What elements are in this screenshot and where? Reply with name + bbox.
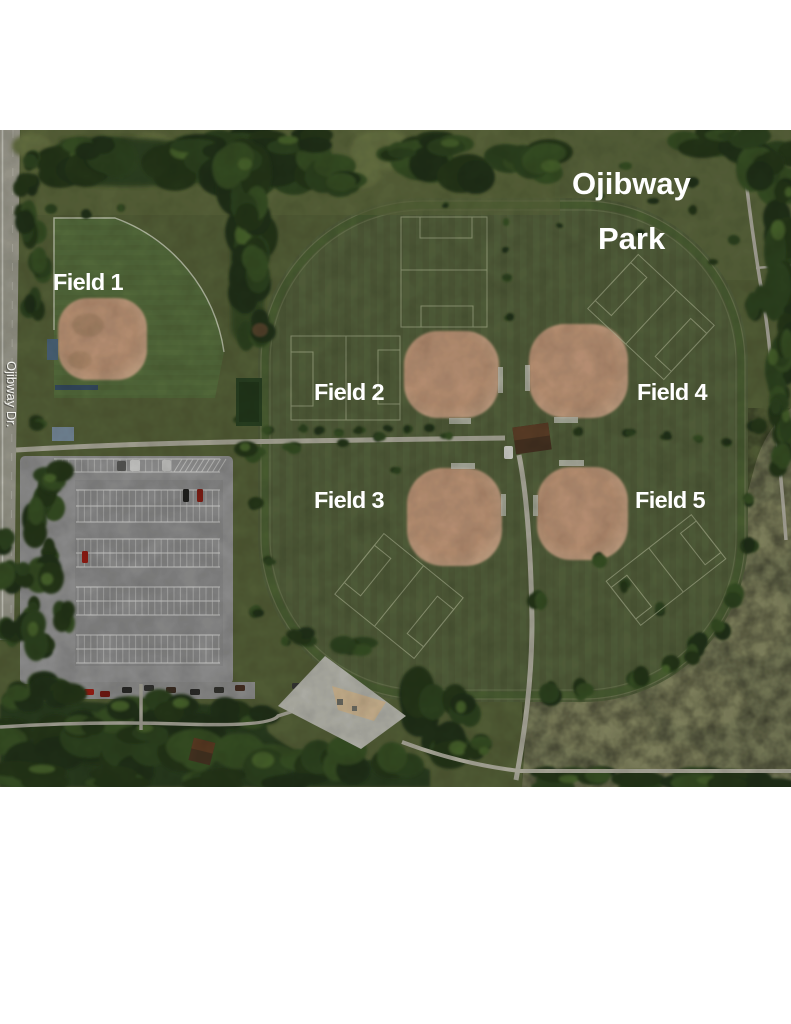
svg-text:Field 3: Field 3 [314,487,384,513]
svg-text:Park: Park [598,221,666,256]
svg-text:Ojibway Dr.: Ojibway Dr. [4,361,19,427]
svg-text:Field 1: Field 1 [53,269,123,295]
svg-text:Ojibway: Ojibway [572,166,692,201]
svg-text:Field 2: Field 2 [314,379,384,405]
svg-text:Field 4: Field 4 [637,379,707,405]
svg-text:Field 5: Field 5 [635,487,705,513]
